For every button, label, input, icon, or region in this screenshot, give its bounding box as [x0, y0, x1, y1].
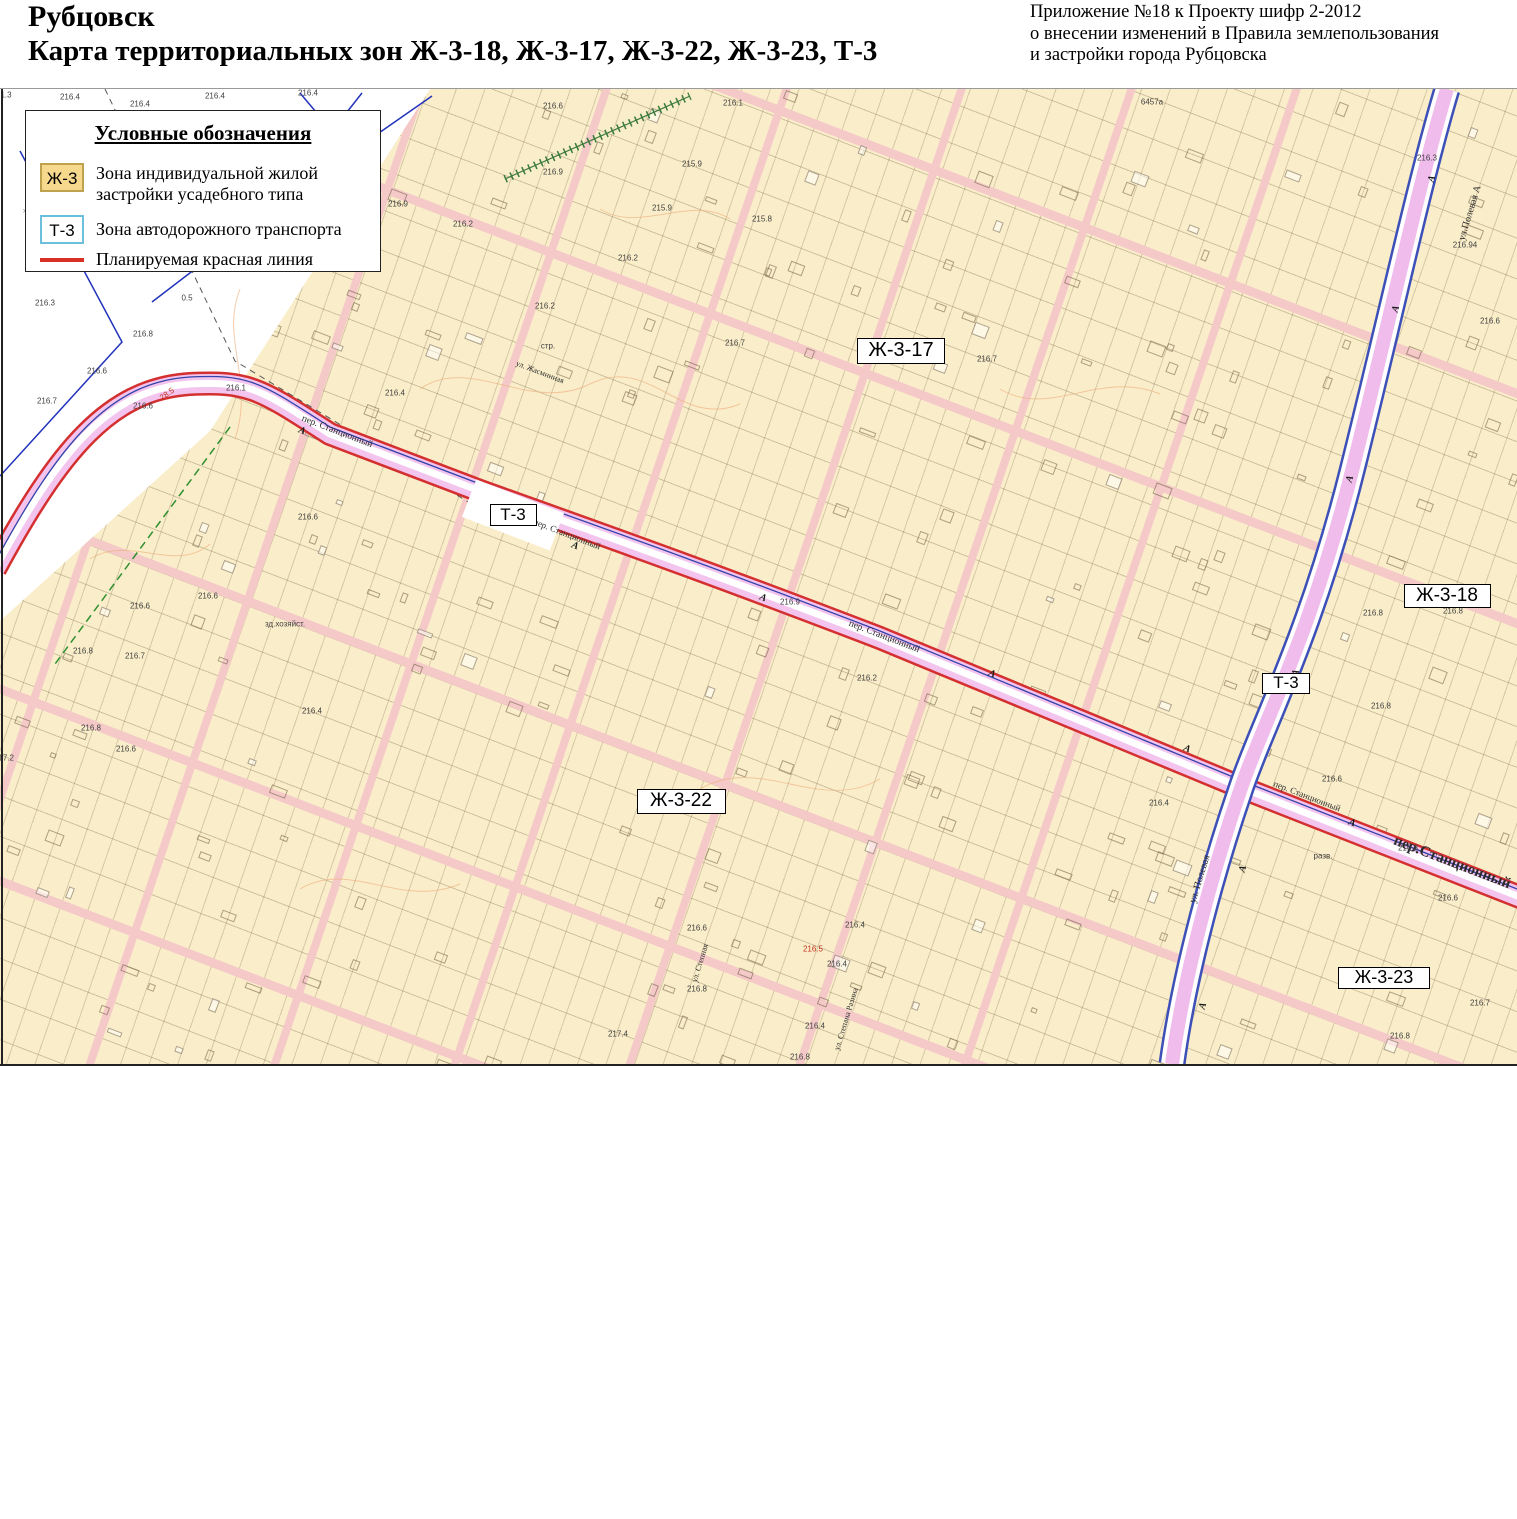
elevation-mark: 216.9	[388, 200, 408, 209]
elevation-mark: 216.7	[37, 397, 57, 406]
elevation-mark: 216.6	[1322, 775, 1342, 784]
street-name-label: пер. Станционный	[1272, 779, 1342, 814]
elevation-mark: 216.6	[116, 745, 136, 754]
elevation-mark: 216.6	[198, 592, 218, 601]
elevation-mark: 0.5	[181, 294, 192, 303]
elevation-mark: 216.4	[385, 389, 405, 398]
elevation-mark: 216.2	[857, 674, 877, 683]
elevation-mark: 215.9	[652, 204, 672, 213]
elevation-mark: 216.4	[1149, 799, 1169, 808]
annotation-block: Приложение №18 к Проекту шифр 2-2012 о в…	[1030, 2, 1439, 67]
street-name-label: ул. Степная	[690, 943, 710, 984]
road-letter-mark: А	[1182, 743, 1192, 756]
zone-label: Ж-3-17	[857, 338, 945, 364]
elevation-mark: 216.94	[1453, 241, 1477, 250]
annotation-line: Приложение №18 к Проекту шифр 2-2012	[1030, 2, 1439, 24]
street-name-label: пер. Станционный	[532, 517, 602, 552]
elevation-mark: 216.4	[130, 100, 150, 109]
elevation-mark: 216.9	[780, 598, 800, 607]
zone-label: Т-3	[1262, 673, 1310, 694]
zone-label: Ж-3-18	[1404, 584, 1491, 608]
page-title: Рубцовск	[28, 0, 155, 34]
elevation-mark: 216.9	[543, 168, 563, 177]
legend-item-label: Зона индивидуальной жилой застройки усад…	[96, 163, 318, 205]
elevation-mark: 216.4	[827, 960, 847, 969]
elevation-mark: 216.2	[618, 254, 638, 263]
elevation-mark: 216.6	[130, 602, 150, 611]
elevation-mark: 216.6	[298, 513, 318, 522]
elevation-mark: 216.5	[803, 945, 823, 954]
elevation-mark: 216.8	[687, 985, 707, 994]
elevation-mark: 216.4	[298, 89, 318, 98]
map-frame-left	[1, 89, 3, 1064]
residential-zone-swatch: Ж-3	[40, 163, 84, 192]
road-letter-mark: А	[758, 592, 768, 605]
zone-label: Ж-3-23	[1338, 967, 1430, 989]
road-letter-mark: А	[1426, 174, 1438, 184]
elevation-mark: 216.4	[302, 707, 322, 716]
elevation-mark: 216.4	[805, 1022, 825, 1031]
elevation-mark: 28.5	[158, 386, 176, 402]
elevation-mark: 216.7	[1470, 999, 1490, 1008]
road-letter-mark: А	[1344, 474, 1356, 484]
zone-label: Ж-3-22	[637, 789, 726, 814]
elevation-mark: 216.2	[453, 220, 473, 229]
elevation-mark: 216.3	[35, 299, 55, 308]
road-letter-mark: А	[987, 668, 997, 681]
elevation-mark: 216.4	[60, 93, 80, 102]
street-name-label: ул.Полевая А	[1456, 184, 1483, 242]
elevation-mark: 216.8	[1390, 1032, 1410, 1041]
elevation-mark: 216.8	[1398, 844, 1418, 853]
annotation-line: о внесении изменений в Правила землеполь…	[1030, 24, 1439, 46]
elevation-mark: разв.	[1314, 852, 1333, 861]
legend-item-label: Планируемая красная линия	[96, 249, 313, 270]
street-name-label: пер. Станционный	[300, 414, 374, 450]
street-name-label: ул. Полевая	[1187, 854, 1212, 905]
elevation-mark: 216.7	[725, 339, 745, 348]
elevation-mark: 216.6	[87, 367, 107, 376]
elevation-mark: 216.7	[125, 652, 145, 661]
elevation-mark: 216.6	[133, 402, 153, 411]
elevation-mark: 216.8	[790, 1053, 810, 1062]
street-name-label: пер.Станционный	[1391, 833, 1513, 893]
elevation-mark: 216.6	[1438, 894, 1458, 903]
elevation-mark: зд.хозяйст.	[265, 620, 305, 629]
road-letter-mark: А	[1197, 1001, 1209, 1011]
elevation-mark: 216.2	[535, 302, 555, 311]
street-name-label: ул. Жасминная	[515, 359, 566, 386]
elevation-mark: 216.8	[1363, 609, 1383, 618]
street-name-label: пер. Станционный	[847, 619, 921, 655]
elevation-mark: 216.8	[1371, 702, 1391, 711]
road-letter-mark: А	[1237, 864, 1249, 874]
road-letter-mark: А	[1347, 817, 1357, 830]
elevation-mark: 216.1	[226, 384, 246, 393]
road-letter-mark: А	[570, 540, 580, 553]
annotation-line: и застройки города Рубцовска	[1030, 45, 1439, 67]
elevation-mark: 216.8	[73, 647, 93, 656]
elevation-mark: 216.3	[1417, 154, 1437, 163]
map-frame-bottom	[0, 1064, 1517, 1066]
elevation-mark: 216.6	[687, 924, 707, 933]
elevation-mark: 6457a	[1141, 98, 1163, 107]
header: Рубцовск Карта территориальных зон Ж-3-1…	[0, 0, 1517, 88]
map-margin	[0, 1066, 1517, 1080]
legend: Условные обозначения Ж-3 Зона индивидуал…	[25, 110, 381, 272]
elevation-mark: 216.6	[1480, 317, 1500, 326]
road-letter-mark: А	[297, 425, 307, 438]
elevation-mark: 216.4	[205, 92, 225, 101]
transport-zone-swatch: Т-3	[40, 215, 84, 244]
legend-title: Условные обозначения	[26, 121, 380, 146]
elevation-mark: 215.8	[752, 215, 772, 224]
elevation-mark: 216.4	[845, 921, 865, 930]
page-subtitle: Карта территориальных зон Ж-3-18, Ж-3-17…	[28, 35, 877, 68]
red-line-swatch	[40, 258, 84, 262]
elevation-mark: 216.8	[133, 330, 153, 339]
elevation-mark: 216.6	[543, 102, 563, 111]
road-letter-mark: А	[1390, 304, 1402, 314]
elevation-mark: 215.9	[682, 160, 702, 169]
elevation-mark: 216.1	[723, 99, 743, 108]
elevation-mark: 216.8	[81, 724, 101, 733]
elevation-mark: стр.	[541, 342, 555, 351]
elevation-mark: 217.4	[608, 1030, 628, 1039]
legend-item-label: Зона автодорожного транспорта	[96, 219, 342, 240]
zone-label: Т-3	[490, 504, 537, 526]
street-name-label: ул. Степана Разина	[832, 987, 860, 1052]
elevation-mark: 216.7	[977, 355, 997, 364]
